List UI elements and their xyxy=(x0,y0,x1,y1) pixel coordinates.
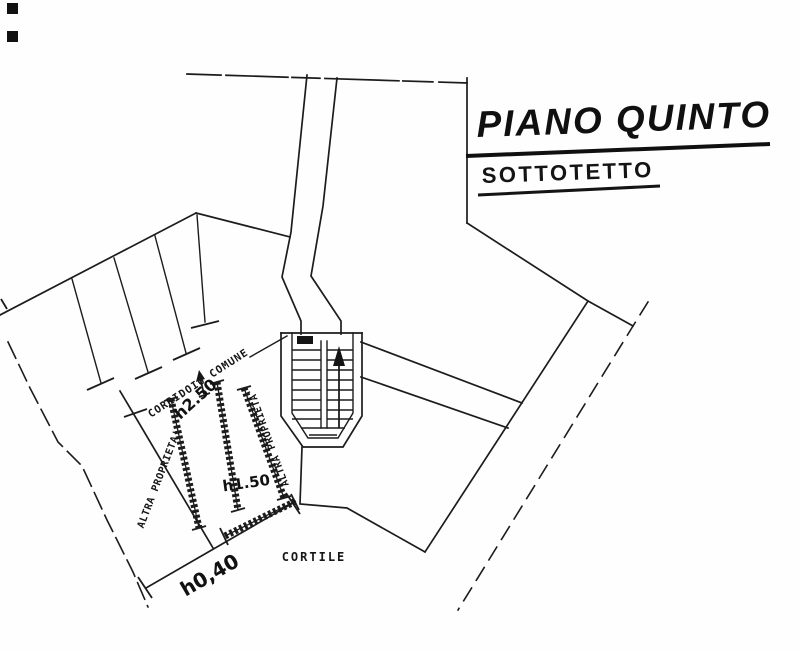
floor-plan-scan: PIANO QUINTO SOTTOTETTO CORRIDOIO COMUNE… xyxy=(0,0,800,653)
page-title: PIANO QUINTO xyxy=(476,94,772,145)
title-block: PIANO QUINTO SOTTOTETTO xyxy=(466,94,772,195)
building-outline-lines xyxy=(187,74,648,610)
partition-lines xyxy=(0,213,290,390)
stairwell xyxy=(281,333,362,447)
dashed-boundary-left xyxy=(8,342,148,607)
annotations: CORRIDOIO COMUNE ALTRA PROPRIETA' ALTRA … xyxy=(136,347,346,602)
other-property-left-label: ALTRA PROPRIETA' xyxy=(136,428,184,529)
title-underline xyxy=(466,144,770,156)
courtyard-label: CORTILE xyxy=(282,550,347,564)
height-low-wall-label: h0,40 xyxy=(176,549,243,602)
stair-up-arrow-icon xyxy=(333,346,345,428)
bottom-double-wall xyxy=(220,494,299,545)
page-subtitle: SOTTOTETTO xyxy=(481,157,654,188)
subtitle-underline xyxy=(478,186,660,195)
scan-artifact-marks xyxy=(7,3,18,42)
floor-plan-svg: PIANO QUINTO SOTTOTETTO CORRIDOIO COMUNE… xyxy=(0,0,800,653)
